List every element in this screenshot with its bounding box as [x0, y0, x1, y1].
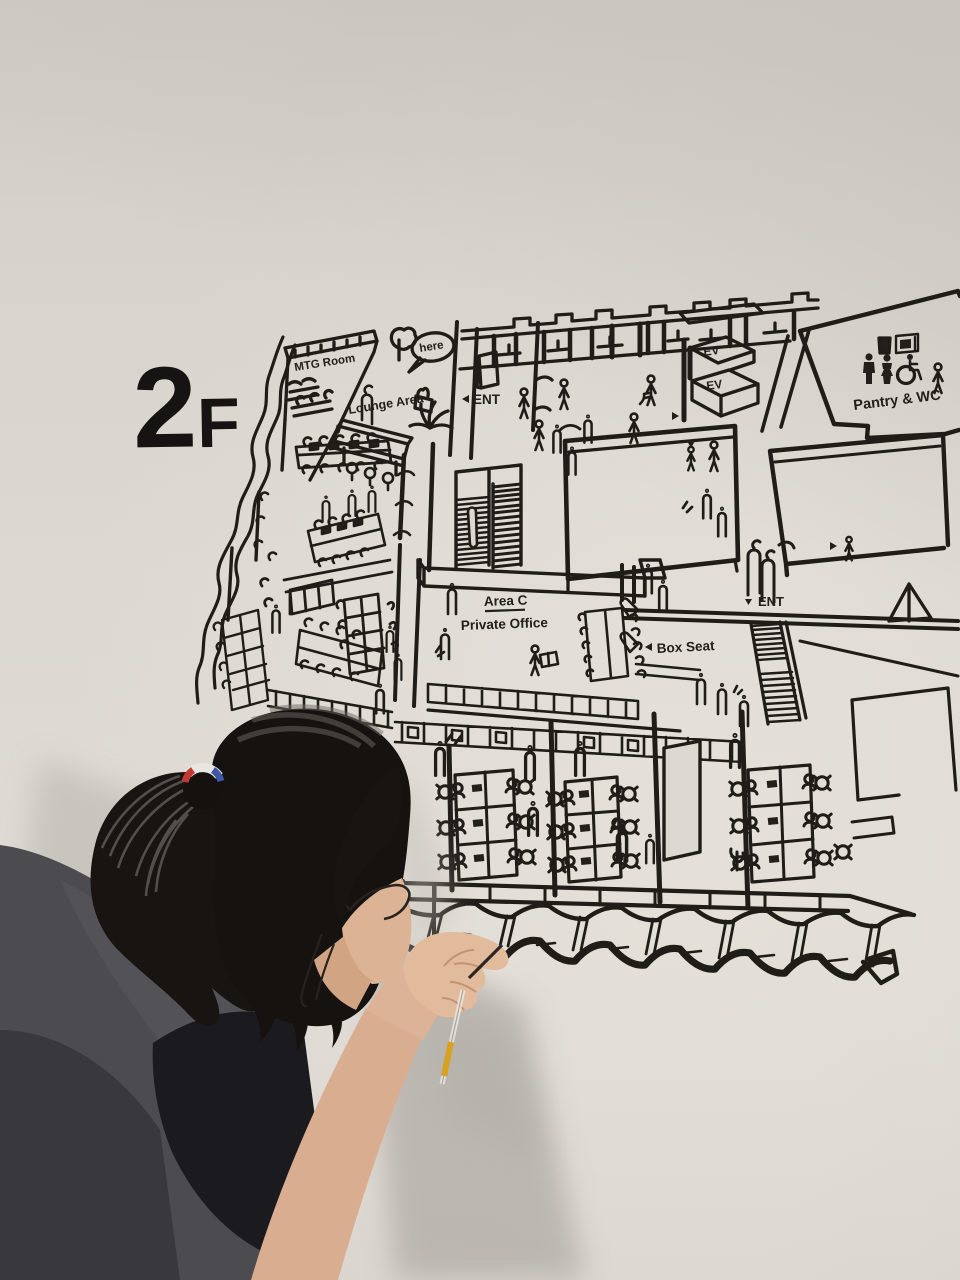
svg-text:ENT: ENT: [758, 594, 784, 609]
svg-text:Area C: Area C: [484, 592, 528, 609]
svg-text:2: 2: [132, 343, 194, 472]
svg-text:ENT: ENT: [473, 392, 501, 407]
svg-text:F: F: [196, 383, 240, 462]
svg-text:Box Seat: Box Seat: [656, 638, 715, 656]
svg-text:EV: EV: [702, 343, 720, 359]
svg-text:EV: EV: [705, 377, 723, 393]
svg-text:Private Office: Private Office: [461, 615, 549, 633]
